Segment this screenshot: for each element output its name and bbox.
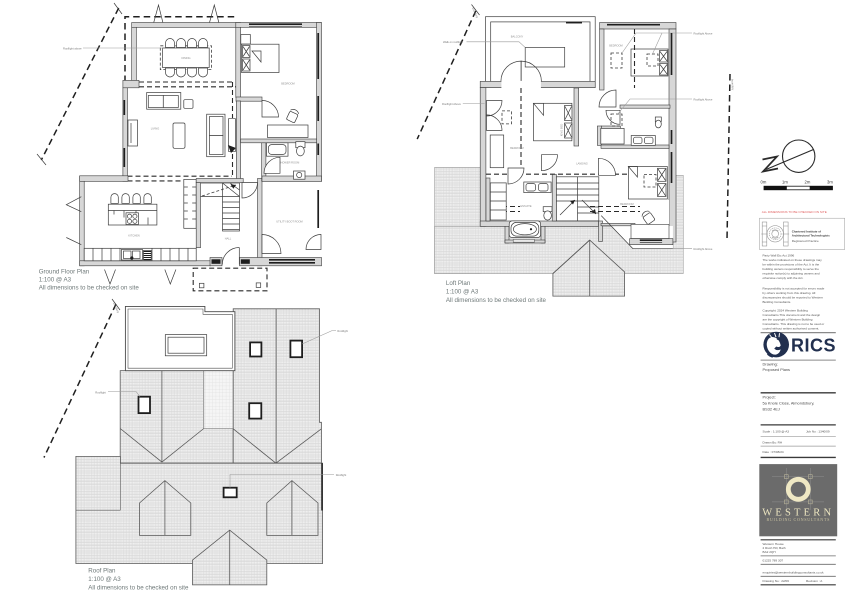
svg-text:1:100 @ A3: 1:100 @ A3 bbox=[88, 576, 121, 583]
svg-text:2m: 2m bbox=[805, 180, 811, 185]
svg-text:5a Knole Close, Almondsbury,: 5a Knole Close, Almondsbury, bbox=[763, 401, 815, 406]
svg-text:KING BED: KING BED bbox=[560, 124, 564, 137]
svg-text:Rooflight: Rooflight bbox=[337, 329, 348, 333]
svg-text:Proposed Plans: Proposed Plans bbox=[763, 367, 791, 372]
svg-text:All dimensions to be checked o: All dimensions to be checked on site bbox=[39, 285, 140, 292]
svg-text:1m: 1m bbox=[782, 180, 788, 185]
svg-text:1:100 @ A3: 1:100 @ A3 bbox=[446, 289, 479, 296]
svg-text:LANDING: LANDING bbox=[576, 161, 588, 165]
svg-text:are the copyright of Western B: are the copyright of Western Building bbox=[763, 318, 813, 322]
svg-text:UTILITY BOOT ROOM: UTILITY BOOT ROOM bbox=[276, 220, 302, 224]
svg-text:BEDROOM: BEDROOM bbox=[620, 202, 633, 206]
svg-text:enquiries@westernbuildingconsu: enquiries@westernbuildingconsultants.co.… bbox=[763, 570, 825, 574]
svg-text:Architectural Technologists: Architectural Technologists bbox=[792, 233, 830, 237]
svg-text:Party Wall Etc Act 1996: Party Wall Etc Act 1996 bbox=[763, 254, 795, 258]
svg-text:Registered Practice: Registered Practice bbox=[792, 239, 819, 243]
svg-text:ENSUITE: ENSUITE bbox=[520, 204, 532, 208]
svg-text:0m: 0m bbox=[761, 180, 767, 185]
svg-text:BALCONY: BALCONY bbox=[511, 35, 524, 39]
svg-text:All dimensions to be checked o: All dimensions to be checked on site bbox=[88, 584, 189, 591]
svg-text:1:100 @ A3: 1:100 @ A3 bbox=[39, 276, 72, 283]
svg-text:Rooflight: Rooflight bbox=[336, 473, 347, 477]
svg-text:DINING: DINING bbox=[181, 56, 190, 60]
svg-text:Consultants.This document and: Consultants.This document and the design bbox=[763, 313, 821, 317]
svg-text:SHOWER ROOM: SHOWER ROOM bbox=[279, 161, 299, 165]
svg-text:Building Consultants.: Building Consultants. bbox=[763, 300, 792, 304]
svg-text:BA2 2QH: BA2 2QH bbox=[763, 550, 776, 554]
svg-text:Walk on rooflight: Walk on rooflight bbox=[443, 40, 463, 44]
svg-text:Responsibility is not accepted: Responsibility is not accepted for error… bbox=[763, 287, 825, 291]
svg-text:Revision : A: Revision : A bbox=[806, 579, 823, 583]
svg-text:Rooflight above: Rooflight above bbox=[63, 47, 82, 51]
svg-text:BEDROOM: BEDROOM bbox=[510, 146, 523, 150]
svg-text:3m: 3m bbox=[827, 180, 833, 185]
svg-text:discrepancies should be report: discrepancies should be reported to West… bbox=[763, 296, 824, 300]
svg-text:Rooflight Above: Rooflight Above bbox=[694, 98, 713, 102]
svg-text:KITCHEN: KITCHEN bbox=[128, 234, 140, 238]
svg-text:The works indicated on these d: The works indicated on these drawings ma… bbox=[763, 258, 823, 262]
svg-text:HALL: HALL bbox=[225, 237, 232, 241]
svg-text:LIVING: LIVING bbox=[151, 127, 160, 131]
svg-text:Copyright: 2024 Western Buildi: Copyright: 2024 Western Building bbox=[763, 309, 809, 313]
svg-text:Rooflight Above: Rooflight Above bbox=[694, 32, 713, 36]
svg-text:boundary: boundary bbox=[731, 79, 735, 91]
svg-text:Rooflight Above: Rooflight Above bbox=[442, 102, 461, 106]
svg-text:otherwise comply with the Act.: otherwise comply with the Act. bbox=[763, 276, 804, 280]
svg-text:Project:: Project: bbox=[763, 394, 776, 399]
svg-text:01225 789 307: 01225 789 307 bbox=[763, 558, 784, 562]
svg-text:Drawn By: RH: Drawn By: RH bbox=[763, 440, 783, 444]
svg-text:be within the provisions of th: be within the provisions of the Act. It … bbox=[763, 263, 820, 267]
svg-text:Rooflight: Rooflight bbox=[95, 390, 106, 394]
svg-text:Scale : 1:100 @ A3: Scale : 1:100 @ A3 bbox=[763, 430, 790, 434]
svg-text:Job No : 1340/09: Job No : 1340/09 bbox=[806, 430, 830, 434]
svg-text:requisite notice(s) to adjoini: requisite notice(s) to adjoining owners … bbox=[763, 272, 820, 276]
svg-text:Date : 07/08/24: Date : 07/08/24 bbox=[763, 450, 784, 454]
svg-text:Consultants. This drawing is n: Consultants. This drawing is not to be u… bbox=[763, 322, 825, 326]
svg-text:ALL DIMENSIONS TO BE CHECKED O: ALL DIMENSIONS TO BE CHECKED ON SITE bbox=[762, 210, 827, 214]
svg-text:Ground Floor Plan: Ground Floor Plan bbox=[39, 268, 90, 275]
svg-text:Roof Plan: Roof Plan bbox=[88, 568, 116, 575]
svg-text:BEDROOM: BEDROOM bbox=[609, 44, 622, 48]
svg-text:All dimensions to be checked o: All dimensions to be checked on site bbox=[446, 297, 547, 304]
svg-text:BS32 4EJ: BS32 4EJ bbox=[763, 406, 780, 411]
svg-text:Loft Plan: Loft Plan bbox=[446, 280, 471, 287]
svg-text:copied without written authori: copied without written authorised consen… bbox=[763, 327, 820, 331]
svg-text:RICS: RICS bbox=[791, 336, 836, 356]
svg-text:Rooflight Above: Rooflight Above bbox=[694, 247, 713, 251]
svg-text:by others working from this dr: by others working from this drawing. All bbox=[763, 291, 816, 295]
svg-text:Drawing No : 22/06: Drawing No : 22/06 bbox=[763, 579, 790, 583]
svg-text:BEDROOM: BEDROOM bbox=[281, 82, 294, 86]
svg-text:BUILDING CONSULTANTS: BUILDING CONSULTANTS bbox=[766, 517, 830, 522]
svg-text:building owners responsibility: building owners responsibility to serve … bbox=[763, 267, 820, 271]
